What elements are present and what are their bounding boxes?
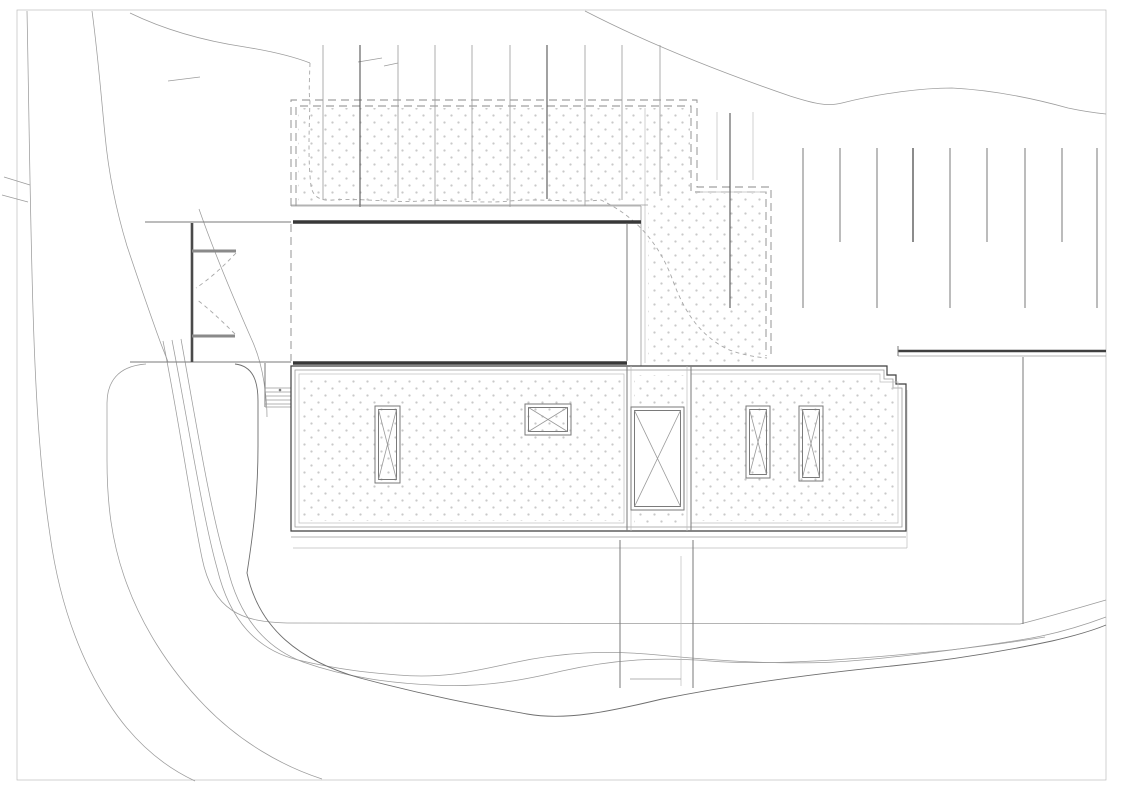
upper-building-block bbox=[291, 206, 641, 368]
entry-gate bbox=[130, 222, 291, 362]
main-roof bbox=[291, 366, 907, 548]
site-plan-sheet bbox=[0, 0, 1123, 794]
planting-lines-east bbox=[803, 148, 1097, 308]
roof-plan-drawing bbox=[0, 0, 1123, 794]
retaining-wall-east bbox=[898, 346, 1106, 356]
west-stair bbox=[265, 363, 291, 407]
hillside-stair-path bbox=[620, 540, 693, 688]
gravel-terrace bbox=[291, 63, 771, 364]
